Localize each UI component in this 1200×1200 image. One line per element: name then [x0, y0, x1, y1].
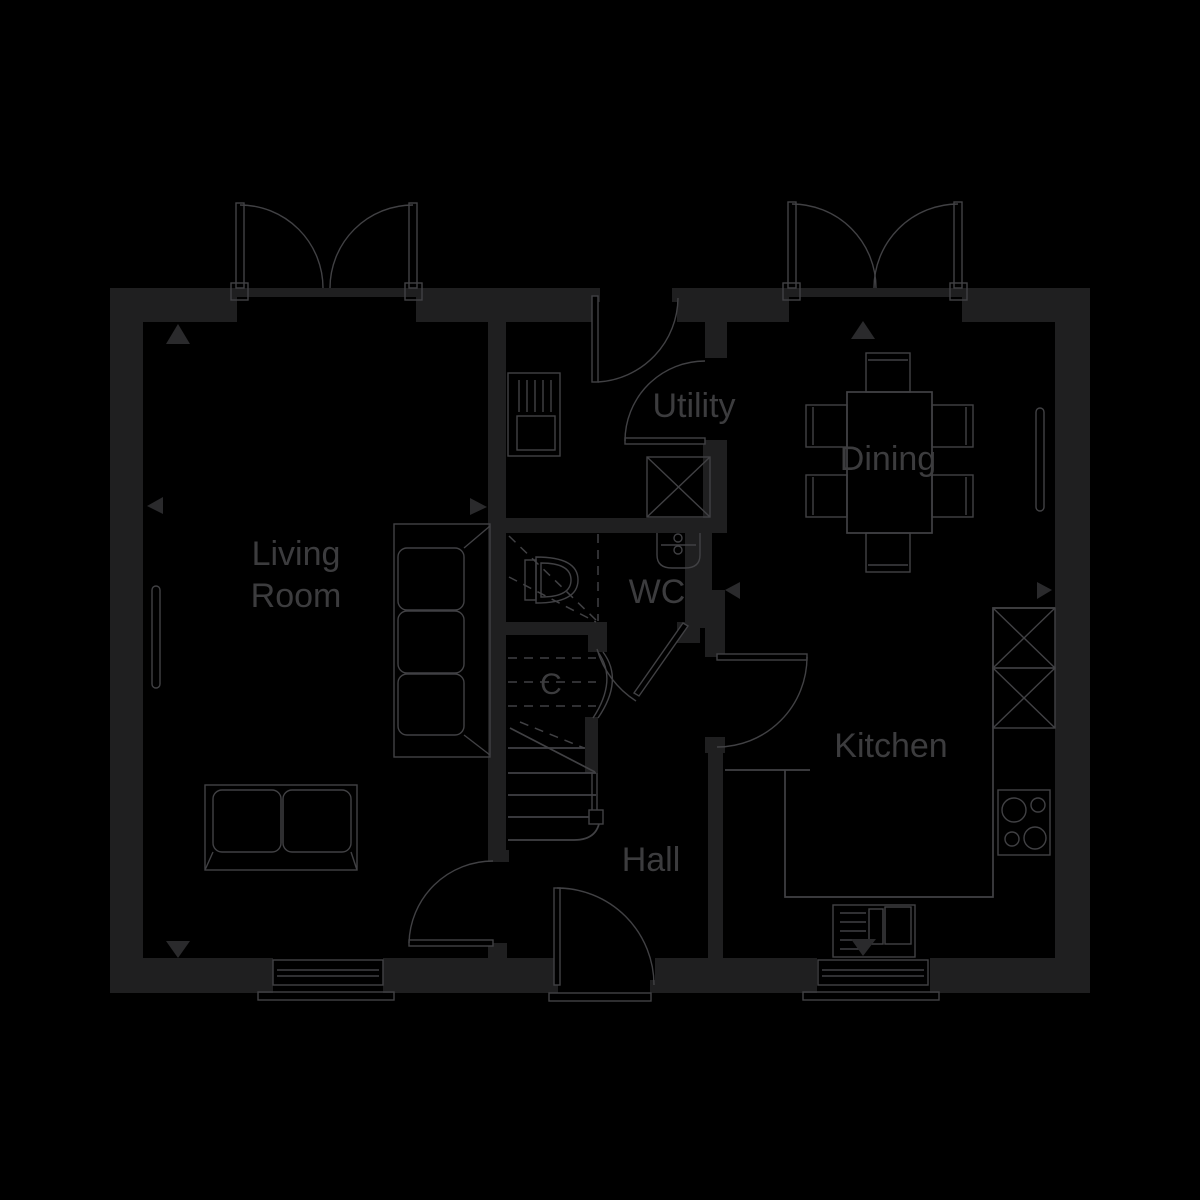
floor-plan-drawing: Living Room Utility Dining WC Kitchen Ha… [0, 0, 1200, 1200]
door-swing-arc [597, 649, 636, 701]
wall-right [1055, 288, 1090, 993]
utility-sink-unit [508, 373, 560, 456]
label-kitchen: Kitchen [834, 727, 947, 765]
jamb-kitchen-door [705, 737, 725, 753]
chair [932, 405, 973, 447]
label-living-room-line1: Living [252, 535, 341, 573]
wall-hall-kitchen-upper [705, 590, 725, 657]
arrow-up-living [166, 324, 190, 344]
french-doors-dining [783, 202, 967, 300]
arrow-down-kitchen [851, 939, 876, 956]
sofa-cushion [283, 790, 351, 852]
stair-handrail [598, 652, 612, 718]
dining-chair-right-1 [932, 405, 973, 447]
label-cupboard: C [540, 668, 562, 701]
window-kitchen [803, 960, 939, 1000]
label-hall: Hall [622, 841, 681, 879]
door-swing-arc [717, 657, 807, 747]
sofa-cushion [398, 674, 464, 735]
front-door [549, 888, 654, 1001]
wall-top-3 [677, 288, 789, 322]
window-frame [273, 960, 383, 985]
door-leaf [788, 202, 796, 288]
jamb-wc-door-left [588, 622, 607, 652]
hob-burner [1024, 827, 1046, 849]
living-room-door [409, 861, 493, 946]
wall-bottom-4 [930, 958, 1090, 993]
stair-bottom-step [508, 815, 600, 840]
sofa-arm-mitre [464, 735, 490, 755]
chair [866, 533, 910, 572]
jamb-living-door-top [488, 850, 509, 862]
windows [258, 960, 939, 1000]
arrow-down-living [166, 941, 190, 958]
wall-bottom-1 [110, 958, 273, 993]
arrow-up-dining [851, 321, 875, 339]
wall-hall-kitchen-lower [708, 753, 723, 958]
appliance-spaces-kitchen [993, 608, 1055, 728]
hob-burner [1031, 798, 1045, 812]
kitchen-door [717, 654, 807, 747]
wall-bottom-3 [655, 958, 817, 993]
door-swing-arc [598, 298, 678, 382]
wall-living-hall [488, 322, 506, 862]
threshold-french-doors-dining [789, 288, 962, 297]
radiator-living-room [152, 586, 160, 688]
kitchen-sink [833, 905, 915, 957]
label-dining: Dining [840, 440, 936, 478]
label-utility: Utility [652, 387, 735, 425]
wall-left [110, 288, 143, 993]
sink-bowl [517, 416, 555, 450]
chair [866, 353, 910, 392]
door-swing-arc [409, 861, 493, 943]
three-seat-sofa [394, 524, 490, 757]
label-wc: WC [629, 573, 686, 611]
wall-utility-stub-top [705, 322, 727, 358]
two-seat-sofa [205, 785, 357, 870]
threshold-french-doors-living [237, 288, 416, 297]
door-swing-arc [874, 204, 958, 288]
window-sill [803, 992, 939, 1000]
basin-tap [674, 546, 682, 554]
chair [806, 475, 847, 517]
french-doors-living-room [231, 203, 422, 300]
sofa-cushion [398, 548, 464, 610]
door-leaf [409, 940, 493, 946]
arrow-left-living [147, 497, 163, 514]
sofa-cushion [213, 790, 281, 852]
sofa-arm-mitre [205, 852, 213, 870]
window-frame [818, 960, 928, 985]
sink-bowl [885, 907, 911, 944]
chair [932, 475, 973, 517]
window-sill [258, 992, 394, 1000]
door-leaf [236, 203, 244, 288]
window-living-room [258, 960, 394, 1000]
unit-outline [508, 373, 560, 456]
hob [998, 790, 1050, 855]
wall-top-4 [962, 288, 1090, 322]
wall-top-2 [416, 288, 597, 322]
dining-chair-bottom [866, 533, 910, 572]
door-leaf [554, 888, 560, 985]
radiator-dining [1036, 408, 1044, 511]
front-door-step [549, 993, 651, 1001]
dining-chair-left-2 [806, 475, 847, 517]
door-swing-arc [792, 204, 876, 288]
hob-burner [1005, 832, 1019, 846]
door-leaf [625, 438, 705, 444]
toilet-cistern [525, 560, 536, 600]
sink-bowl [869, 909, 883, 944]
door-swing-arc [557, 888, 654, 985]
arrow-right-kitchen [1037, 582, 1052, 599]
door-leaf [592, 296, 598, 382]
sofa-arm-mitre [464, 526, 490, 548]
hob-burner [1002, 798, 1026, 822]
appliance-space-utility [647, 457, 710, 517]
stair-over-dashed [509, 577, 596, 622]
door-swing-arc [330, 205, 413, 288]
stair-break-dashed [520, 722, 584, 748]
door-leaf [409, 203, 417, 288]
toilet [525, 557, 578, 603]
door-leaf [954, 202, 962, 288]
wall-utility-bottom [488, 518, 727, 533]
wall-top-1 [110, 288, 237, 322]
sofa-arm-mitre [351, 852, 357, 870]
newel-post [589, 810, 603, 824]
door-leaf [634, 623, 688, 696]
arrow-right-living [470, 498, 487, 515]
jamb-front-door-right [650, 980, 664, 993]
wall-bottom-2 [383, 958, 557, 993]
basin-tap [674, 534, 682, 542]
stair-over-dashed [509, 536, 596, 620]
floor-plan-canvas: Living Room Utility Dining WC Kitchen Ha… [0, 0, 1200, 1200]
door-swing-arc [240, 205, 323, 288]
living-room-furniture [205, 524, 490, 870]
arrow-left-kitchen [725, 582, 740, 599]
sofa-outline [394, 524, 490, 757]
label-living-room-line2: Room [251, 577, 342, 615]
door-leaf [717, 654, 807, 660]
sofa-cushion [398, 611, 464, 673]
back-door-utility [592, 296, 678, 382]
dining-chair-right-2 [932, 475, 973, 517]
dining-chair-top [866, 353, 910, 392]
wall-stair-stub [585, 717, 598, 773]
